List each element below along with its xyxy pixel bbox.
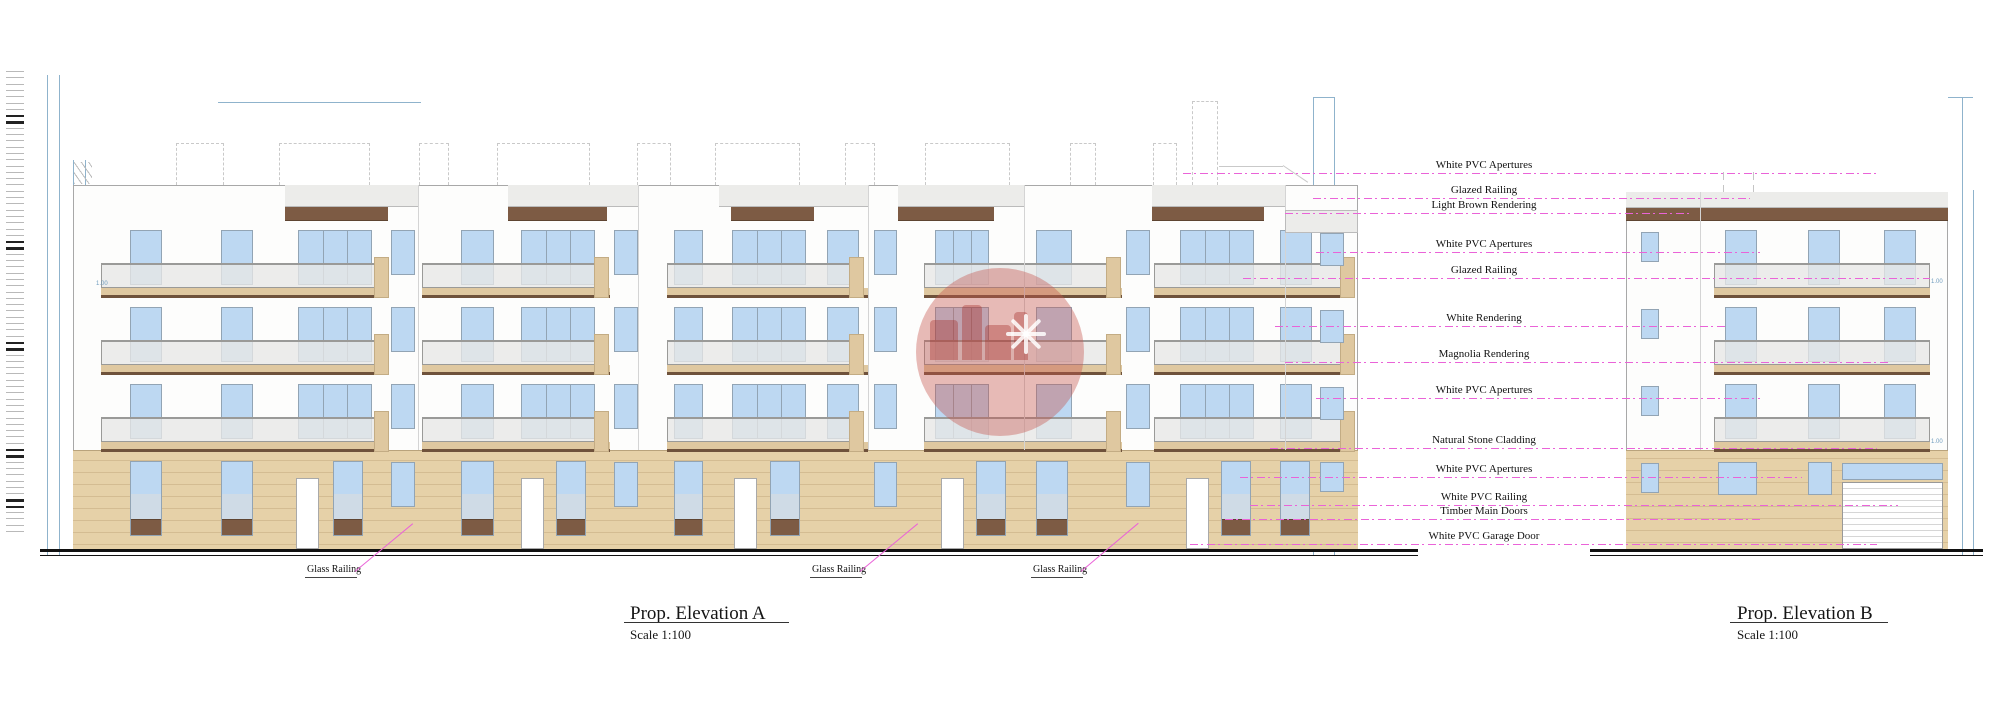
annotation-label: White PVC Apertures [1436, 463, 1533, 475]
annotation-label: White PVC Garage Door [1429, 530, 1540, 542]
balcony-glazed-railing [1714, 417, 1930, 442]
dimension-text: 1.00 [1931, 439, 1943, 445]
stone-window-lower-pane [1037, 494, 1067, 519]
stone-window-lower-pane [131, 494, 161, 519]
level-staff-tick [6, 380, 24, 381]
elevation-drawing-sheet: Prop. Elevation A Scale 1:100 Prop. Elev… [0, 0, 2000, 722]
dimension-line-horizontal [1948, 97, 1973, 98]
level-staff-tick [6, 418, 24, 419]
main-door [941, 478, 964, 549]
stone-course-line [73, 520, 1358, 521]
small-window-b [1641, 232, 1659, 262]
level-staff-tick [6, 481, 24, 482]
penthouse-dashed-box [637, 143, 671, 185]
level-staff-tick [6, 531, 24, 532]
level-staff-tick [6, 493, 24, 494]
wall-joint-line [418, 185, 419, 450]
annotation-label: Light Brown Rendering [1431, 199, 1536, 211]
level-staff-tick [6, 399, 24, 400]
stone-window-lower-pane [462, 494, 493, 519]
level-staff-tick [6, 525, 24, 526]
glass-railing-underline [810, 577, 862, 578]
balcony-slab [1714, 365, 1930, 375]
balcony-slab [1714, 288, 1930, 298]
level-staff-tick [6, 462, 24, 463]
level-staff-tick [6, 355, 24, 356]
level-staff-tick [6, 279, 24, 280]
level-staff-tick [6, 191, 24, 192]
level-staff-tick [6, 386, 24, 387]
annotation-label: White PVC Apertures [1436, 159, 1533, 171]
penthouse-dashed-box [715, 143, 800, 185]
garage-transom-window [1842, 463, 1943, 480]
glass-railing-label: Glass Railing [1033, 564, 1087, 575]
main-door [1186, 478, 1209, 549]
annotation-label: White PVC Apertures [1436, 238, 1533, 250]
level-staff-tick [6, 222, 24, 223]
annotation-leader-line [1275, 326, 1725, 327]
small-window-b [1641, 309, 1659, 339]
main-door [521, 478, 544, 549]
stone-course-line [73, 508, 1358, 509]
garage-door [1842, 482, 1943, 549]
roof-dashed-line [125, 127, 1249, 128]
level-staff-tick [6, 77, 24, 78]
level-staff-tick [6, 323, 24, 324]
stone-course-line-b [1626, 458, 1948, 459]
recess-window [614, 384, 638, 429]
wall-joint-line [868, 185, 869, 450]
recess-window [874, 462, 897, 507]
level-staff-tick [6, 178, 24, 179]
level-staff-tick [6, 121, 24, 123]
stone-window-base-panel [131, 519, 161, 535]
end-window [1320, 233, 1344, 266]
stone-window-base-panel [1222, 519, 1250, 535]
dimension-line-vertical [1973, 190, 1974, 556]
annotation-label: White Rendering [1446, 312, 1521, 324]
level-staff-tick [6, 304, 24, 305]
level-staff-tick [6, 166, 24, 167]
parapet-band-brown [731, 207, 814, 221]
annotation-leader-line [1316, 398, 1760, 399]
balcony-glazed-railing [1154, 263, 1348, 288]
stone-window-lower-pane [557, 494, 585, 519]
dimension-line-horizontal [1313, 97, 1334, 98]
stone-pier [849, 257, 864, 298]
level-staff-tick [6, 184, 24, 185]
level-staff-tick [6, 260, 24, 261]
balcony-slab [667, 365, 868, 375]
stone-pier [594, 411, 609, 452]
stone-window-base-panel [1037, 519, 1067, 535]
stone-pier [594, 257, 609, 298]
penthouse-dashed-box [176, 143, 224, 185]
stone-window-lower-pane [222, 494, 252, 519]
annotation-leader-line [1250, 505, 1898, 506]
level-staff-tick [6, 310, 24, 311]
dimension-line-vertical [47, 75, 48, 556]
stone-cladding [73, 450, 1358, 549]
recess-window [614, 307, 638, 352]
wall-joint-line [638, 185, 639, 450]
dimension-text: 1.00 [1931, 279, 1943, 285]
parapet-band-brown [1152, 207, 1264, 221]
main-door [734, 478, 757, 549]
stone-window-lower-pane [1281, 494, 1309, 519]
level-staff-tick [6, 292, 24, 293]
balcony-glazed-railing [1154, 417, 1348, 442]
level-staff-tick [6, 285, 24, 286]
level-staff-tick [6, 348, 24, 350]
balcony-glazed-railing [667, 417, 861, 442]
balcony-slab [1154, 365, 1352, 375]
level-staff-tick [6, 254, 24, 255]
annotation-label: Timber Main Doors [1440, 505, 1528, 517]
balcony-glazed-railing [667, 340, 861, 365]
glass-railing-underline [305, 577, 357, 578]
level-staff-tick [6, 443, 24, 444]
balcony-slab [101, 442, 387, 452]
stone-pier [1106, 411, 1121, 452]
recess-window [391, 230, 415, 275]
elevation-b-scale: Scale 1:100 [1737, 627, 1798, 643]
stone-window-base-panel [222, 519, 252, 535]
dimension-line-vertical [59, 75, 60, 556]
penthouse-dashed-box [497, 143, 590, 185]
balcony-slab [101, 365, 387, 375]
balcony-glazed-railing [667, 263, 861, 288]
stone-course-line [73, 484, 1358, 485]
stone-pier [1106, 257, 1121, 298]
level-staff-tick [6, 172, 24, 173]
level-staff-tick [6, 317, 24, 318]
annotation-leader-line [1243, 278, 1930, 279]
stone-window-lower-pane [771, 494, 799, 519]
level-staff-tick [6, 430, 24, 431]
recess-window [391, 307, 415, 352]
level-staff-tick [6, 71, 24, 72]
penthouse-dashed-box [1070, 143, 1096, 185]
level-staff-tick [6, 197, 24, 198]
annotation-leader-line [1316, 252, 1760, 253]
recess-window [1126, 230, 1150, 275]
roof-dashed-line [125, 133, 1249, 134]
dimension-line-horizontal [218, 102, 421, 103]
main-door [296, 478, 319, 549]
stone-window-base-panel [1281, 519, 1309, 535]
level-staff-tick [6, 342, 24, 344]
stone-window-base-panel [675, 519, 702, 535]
balcony-glazed-railing [422, 340, 603, 365]
parapet-band-brown [285, 207, 388, 221]
level-staff-tick [6, 203, 24, 204]
level-staff-tick [6, 449, 24, 451]
balcony-slab [1154, 442, 1352, 452]
stone-window-base-panel [771, 519, 799, 535]
level-staff-tick [6, 455, 24, 457]
balcony-slab [667, 442, 868, 452]
balcony-slab [1714, 442, 1930, 452]
level-staff-tick [6, 128, 24, 129]
dimension-text: 1.00 [96, 281, 108, 287]
glass-railing-label: Glass Railing [307, 564, 361, 575]
level-staff-tick [6, 487, 24, 488]
recess-window [391, 462, 415, 507]
stone-pier [1106, 334, 1121, 375]
level-staff-tick [6, 273, 24, 274]
stone-window-lower-pane [675, 494, 702, 519]
recess-window [1126, 307, 1150, 352]
level-staff-tick [6, 336, 24, 337]
recess-window [1126, 384, 1150, 429]
glass-railing-underline [1031, 577, 1083, 578]
ground-line [40, 549, 1418, 552]
stone-window-lower-pane [334, 494, 362, 519]
roof-dashed-vert [1723, 172, 1724, 192]
penthouse-dashed-box [845, 143, 875, 185]
balcony-slab [422, 288, 610, 298]
level-staff-tick [6, 216, 24, 217]
balcony-glazed-railing [101, 340, 380, 365]
annotation-leader-line [1270, 448, 1877, 449]
balcony-glazed-railing [422, 263, 603, 288]
balcony-slab [667, 288, 868, 298]
level-staff-tick [6, 411, 24, 412]
recess-window [874, 307, 897, 352]
stone-window-b [1718, 462, 1757, 495]
level-staff-tick [6, 96, 24, 97]
stone-pier [374, 334, 389, 375]
ground-line-b2 [1590, 555, 1983, 556]
title-a-underline [624, 622, 789, 623]
annotation-label: Magnolia Rendering [1439, 348, 1530, 360]
stone-pier [594, 334, 609, 375]
title-b-underline [1730, 622, 1888, 623]
stone-course-line [73, 472, 1358, 473]
stone-pier [374, 411, 389, 452]
penthouse-dashed-box [1153, 143, 1177, 185]
parapet-band-gray [285, 185, 418, 207]
parapet-band-gray [1152, 185, 1285, 207]
level-staff-tick [6, 298, 24, 299]
level-staff-tick [6, 90, 24, 91]
level-staff-tick [6, 512, 24, 513]
parapet-band-brown-b [1626, 208, 1948, 221]
stone-pier [374, 257, 389, 298]
end-window [1320, 387, 1344, 420]
level-staff-tick [6, 134, 24, 135]
stone-course-line [73, 532, 1358, 533]
level-staff-tick [6, 367, 24, 368]
stone-pier [849, 411, 864, 452]
balcony-glazed-railing [422, 417, 603, 442]
annotation-leader-line [1240, 477, 1802, 478]
elevation-a-scale: Scale 1:100 [630, 627, 691, 643]
level-staff-tick [6, 247, 24, 249]
level-staff-tick [6, 361, 24, 362]
penthouse-outline [1219, 166, 1283, 167]
stone-window-b [1808, 462, 1832, 495]
recess-window [391, 384, 415, 429]
level-staff-tick [6, 235, 24, 236]
recess-window [614, 230, 638, 275]
level-staff-tick [6, 241, 24, 243]
annotation-label: Natural Stone Cladding [1432, 434, 1536, 446]
balcony-slab [422, 365, 610, 375]
balcony-glazed-railing [1714, 263, 1930, 288]
penthouse-dashed-box [925, 143, 1010, 185]
stone-window-base-panel [557, 519, 585, 535]
level-staff-tick [6, 153, 24, 154]
balcony-slab [422, 442, 610, 452]
small-window-b [1641, 386, 1659, 416]
recess-window [1126, 462, 1150, 507]
level-staff-tick [6, 329, 24, 330]
stone-window-base-panel [462, 519, 493, 535]
parapet-band-gray [719, 185, 868, 207]
watermark-star-icon [1004, 312, 1048, 356]
annotation-label: White PVC Railing [1441, 491, 1527, 503]
parapet-band-brown [508, 207, 607, 221]
level-staff-tick [6, 499, 24, 501]
annotation-leader-line [1285, 362, 1888, 363]
level-staff-tick [6, 140, 24, 141]
watermark-skyline [962, 305, 982, 360]
stone-course-line [73, 496, 1358, 497]
roof-dashed-vert [1753, 172, 1754, 192]
stone-window-base-panel [334, 519, 362, 535]
penthouse-dashed-box [279, 143, 370, 185]
small-stone-window-b [1641, 463, 1659, 493]
annotation-leader-line [1190, 544, 1877, 545]
penthouse-dashed-box [419, 143, 449, 185]
level-staff-tick [6, 147, 24, 148]
recess-window [874, 230, 897, 275]
roof-dashed-line-b [1642, 179, 1858, 180]
parapet-band-gray [898, 185, 1024, 207]
level-staff-tick [6, 518, 24, 519]
annotation-leader-line [1183, 173, 1878, 174]
stone-window-base-panel [977, 519, 1005, 535]
level-staff-tick [6, 506, 24, 508]
ground-line-b [1590, 549, 1983, 552]
annotation-leader-line [1225, 519, 1762, 520]
level-staff-tick [6, 424, 24, 425]
parapet-hatch [74, 162, 92, 184]
level-staff-tick [6, 115, 24, 117]
recess-window [614, 462, 638, 507]
level-staff-tick [6, 373, 24, 374]
stone-course-line [73, 544, 1358, 545]
level-staff-tick [6, 229, 24, 230]
level-staff-tick [6, 84, 24, 85]
annotation-label: Glazed Railing [1451, 264, 1517, 276]
stone-pier [849, 334, 864, 375]
level-staff-tick [6, 109, 24, 110]
annotation-label: Glazed Railing [1451, 184, 1517, 196]
level-staff-tick [6, 392, 24, 393]
parapet-band-brown [898, 207, 994, 221]
level-staff-tick [6, 436, 24, 437]
balcony-slab [101, 288, 387, 298]
level-staff-tick [6, 405, 24, 406]
roof-dashed-line [82, 98, 1249, 99]
level-staff-tick [6, 159, 24, 160]
annotation-label: White PVC Apertures [1436, 384, 1533, 396]
level-staff-tick [6, 210, 24, 211]
balcony-slab [924, 442, 1122, 452]
level-staff-tick [6, 468, 24, 469]
stone-window-lower-pane [977, 494, 1005, 519]
parapet-band-gray [508, 185, 638, 207]
stone-course-line [73, 460, 1358, 461]
level-staff-tick [6, 266, 24, 267]
annotation-leader-line [1285, 213, 1690, 214]
glass-railing-label: Glass Railing [812, 564, 866, 575]
parapet-band-gray-b [1626, 192, 1948, 208]
balcony-slab [1154, 288, 1352, 298]
balcony-glazed-railing [101, 417, 380, 442]
stone-window-lower-pane [1222, 494, 1250, 519]
ground-line-2 [40, 555, 1418, 556]
recess-window [874, 384, 897, 429]
dimension-line-vertical [1962, 97, 1963, 556]
balcony-glazed-railing [101, 263, 380, 288]
level-staff-tick [6, 103, 24, 104]
level-staff-tick [6, 474, 24, 475]
watermark-skyline [930, 320, 958, 360]
